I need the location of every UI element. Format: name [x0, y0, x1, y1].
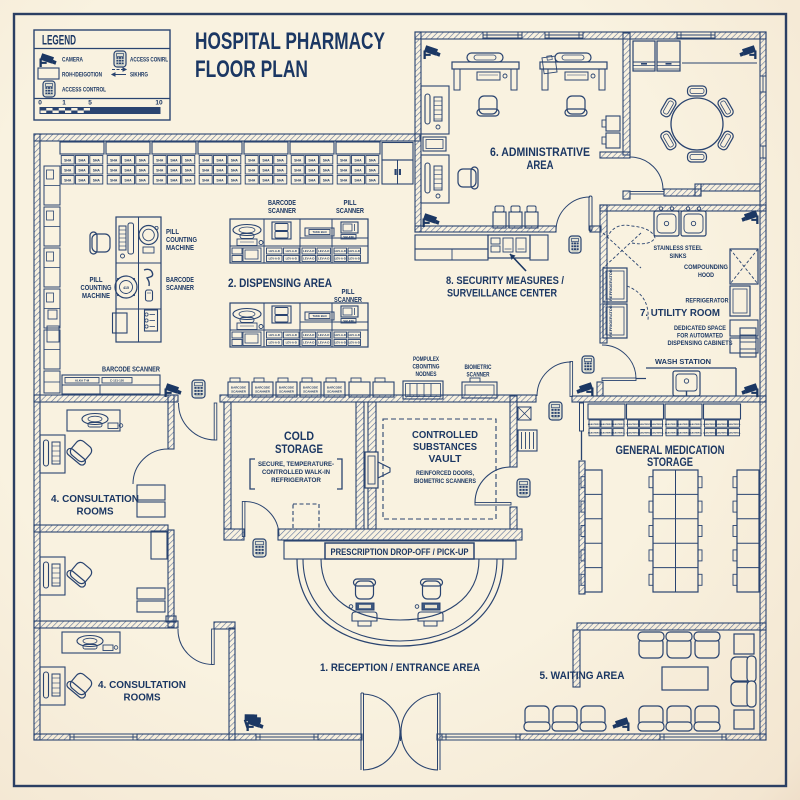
svg-text:SHA: SHA — [78, 158, 86, 162]
svg-text:SHA: SHA — [202, 178, 210, 182]
svg-text:LEV-A-D: LEV-A-D — [335, 257, 346, 261]
svg-text:HOSPITAL PHARMACY: HOSPITAL PHARMACY — [195, 28, 385, 55]
svg-text:C-121-120: C-121-120 — [110, 378, 125, 382]
svg-text:ALBUTEROL: ALBUTEROL — [650, 431, 664, 434]
svg-text:SHA: SHA — [262, 178, 270, 182]
svg-text:AREA: AREA — [527, 160, 554, 172]
svg-text:SHA: SHA — [216, 168, 224, 172]
svg-text:SHA: SHA — [124, 158, 132, 162]
svg-text:SHA: SHA — [277, 168, 285, 172]
svg-text:NODNES: NODNES — [416, 372, 437, 378]
svg-text:BARCODE: BARCODE — [268, 200, 296, 207]
svg-text:CONTROLLED: CONTROLLED — [412, 429, 478, 441]
svg-text:LEGEND: LEGEND — [42, 33, 76, 48]
svg-text:1. RECEPTION / ENTRANCE AREA: 1. RECEPTION / ENTRANCE AREA — [320, 662, 480, 674]
svg-text:COUNTING: COUNTING — [81, 285, 112, 292]
svg-text:LEV-A-D: LEV-A-D — [269, 249, 280, 253]
svg-text:SHA: SHA — [202, 158, 210, 162]
svg-text:SHA: SHA — [323, 168, 331, 172]
svg-text:SINKS: SINKS — [670, 253, 688, 260]
svg-text:ACCESS CONIRL: ACCESS CONIRL — [130, 57, 168, 64]
svg-text:SHA: SHA — [294, 158, 302, 162]
svg-text:SHA: SHA — [248, 158, 256, 162]
svg-text:SHA: SHA — [156, 178, 164, 182]
svg-text:SHA: SHA — [64, 178, 72, 182]
svg-text:CAMERA: CAMERA — [62, 57, 83, 64]
svg-text:SHA: SHA — [323, 158, 331, 162]
svg-text:REFRIGERATOR: REFRIGERATOR — [608, 305, 613, 337]
svg-text:ROOMS: ROOMS — [124, 693, 161, 704]
svg-text:LEV-A-D: LEV-A-D — [318, 249, 329, 253]
svg-text:ROOMS: ROOMS — [77, 507, 114, 518]
svg-text:TAKE BLN: TAKE BLN — [313, 314, 327, 318]
svg-text:SURVEILLANCE CENTER: SURVEILLANCE CENTER — [447, 288, 557, 300]
svg-text:SHA: SHA — [185, 158, 193, 162]
svg-text:SCANNER: SCANNER — [327, 390, 343, 394]
svg-text:SHA: SHA — [124, 178, 132, 182]
svg-text:STORAGE: STORAGE — [647, 457, 693, 469]
svg-text:SHA: SHA — [277, 158, 285, 162]
svg-text:SHA: SHA — [216, 158, 224, 162]
svg-text:COUNTING: COUNTING — [166, 237, 197, 244]
svg-text:PILL: PILL — [90, 277, 104, 284]
svg-text:LEV-A-D: LEV-A-D — [335, 249, 346, 253]
svg-text:LEV-A-D: LEV-A-D — [286, 257, 297, 261]
svg-text:ALBUTEROL: ALBUTEROL — [727, 423, 741, 426]
svg-text:HOOD: HOOD — [698, 272, 714, 279]
svg-text:SHA: SHA — [78, 178, 86, 182]
svg-text:7. UTILITY ROOM: 7. UTILITY ROOM — [640, 307, 720, 319]
svg-text:PILL: PILL — [344, 200, 358, 207]
svg-text:POMPULEX: POMPULEX — [413, 357, 439, 363]
svg-text:SHA: SHA — [231, 158, 239, 162]
svg-text:SCANNER: SCANNER — [467, 373, 491, 379]
svg-text:FOR AUTOMATED: FOR AUTOMATED — [677, 333, 723, 340]
svg-text:SHA: SHA — [294, 168, 302, 172]
svg-text:SHA: SHA — [248, 168, 256, 172]
svg-text:SHA: SHA — [369, 178, 377, 182]
svg-text:SCANNER: SCANNER — [336, 208, 364, 215]
svg-text:LEV-A-D: LEV-A-D — [303, 341, 314, 345]
svg-text:10: 10 — [155, 100, 163, 107]
svg-text:SHA: SHA — [139, 168, 147, 172]
svg-text:ALBUTEROL: ALBUTEROL — [612, 431, 626, 434]
svg-text:CONTROLLED WALK-IN: CONTROLLED WALK-IN — [262, 469, 330, 476]
svg-text:PILL: PILL — [342, 289, 356, 296]
svg-text:SHA: SHA — [78, 168, 86, 172]
svg-text:LEV-A-D: LEV-A-D — [318, 257, 329, 261]
svg-text:SHA: SHA — [93, 158, 101, 162]
svg-text:SHA: SHA — [308, 158, 316, 162]
svg-text:STAINLESS STEEL: STAINLESS STEEL — [654, 245, 703, 252]
svg-text:ALBUTEROL: ALBUTEROL — [689, 423, 703, 426]
svg-text:SHA: SHA — [110, 158, 118, 162]
svg-text:LEV-A-D: LEV-A-D — [318, 341, 329, 345]
svg-text:0: 0 — [38, 100, 42, 107]
svg-text:SHA: SHA — [277, 178, 285, 182]
svg-text:SHA: SHA — [185, 178, 193, 182]
svg-text:SHA: SHA — [170, 158, 178, 162]
svg-text:SIKHRG: SIKHRG — [130, 72, 148, 79]
svg-text:SHA: SHA — [262, 168, 270, 172]
svg-text:LEV-A-D: LEV-A-D — [269, 341, 280, 345]
svg-text:LEV-A-D: LEV-A-D — [286, 333, 297, 337]
svg-text:DEDICATED SPACE: DEDICATED SPACE — [674, 325, 727, 332]
svg-text:SHA: SHA — [340, 178, 348, 182]
svg-text:SHA: SHA — [93, 178, 101, 182]
svg-text:SHA: SHA — [216, 178, 224, 182]
svg-text:BARCODE SCANNER: BARCODE SCANNER — [102, 367, 160, 374]
svg-text:SCANNER: SCANNER — [255, 390, 271, 394]
svg-text:SHA: SHA — [308, 168, 316, 172]
svg-text:SCANNER: SCANNER — [268, 208, 296, 215]
svg-text:LEV-A-D: LEV-A-D — [318, 333, 329, 337]
svg-text:LEV-A-D: LEV-A-D — [349, 249, 360, 253]
svg-text:5: 5 — [88, 100, 92, 107]
svg-text:ALKA T-M: ALKA T-M — [75, 378, 90, 382]
svg-text:SHA: SHA — [308, 178, 316, 182]
svg-text:SCANNER: SCANNER — [279, 390, 295, 394]
svg-text:MACHINE: MACHINE — [82, 293, 110, 300]
svg-text:SHA: SHA — [64, 168, 72, 172]
svg-text:REFRIGERATOR: REFRIGERATOR — [608, 269, 613, 301]
svg-text:CBONITING: CBONITING — [413, 365, 440, 371]
svg-text:SHA: SHA — [231, 168, 239, 172]
svg-text:LEV-A-D: LEV-A-D — [349, 257, 360, 261]
svg-text:SHA: SHA — [369, 168, 377, 172]
svg-text:ALBUTEROL: ALBUTEROL — [612, 423, 626, 426]
svg-text:SHA: SHA — [262, 158, 270, 162]
svg-text:LEV-A-D: LEV-A-D — [269, 333, 280, 337]
svg-text:SHA: SHA — [248, 178, 256, 182]
svg-text:SHA: SHA — [340, 158, 348, 162]
svg-text:SHA: SHA — [369, 158, 377, 162]
svg-text:BARCODE: BARCODE — [166, 277, 194, 284]
svg-text:GENERAL MEDICATION: GENERAL MEDICATION — [616, 445, 725, 457]
svg-text:ALBUTEROL: ALBUTEROL — [727, 431, 741, 434]
svg-text:SHA: SHA — [64, 158, 72, 162]
svg-text:SHA: SHA — [354, 158, 362, 162]
svg-text:LEV-A-D: LEV-A-D — [286, 341, 297, 345]
svg-text:SCANNER: SCANNER — [231, 390, 247, 394]
svg-text:5. WAITING AREA: 5. WAITING AREA — [540, 670, 625, 682]
svg-text:VAULT: VAULT — [429, 453, 463, 465]
svg-text:SHA: SHA — [340, 168, 348, 172]
svg-text:ALBUTEROL: ALBUTEROL — [689, 431, 703, 434]
svg-text:4. CONSULTATION: 4. CONSULTATION — [51, 494, 139, 505]
svg-text:REFRIGERATOR: REFRIGERATOR — [271, 477, 321, 484]
svg-text:SHA: SHA — [110, 178, 118, 182]
svg-text:BIOMETRIC: BIOMETRIC — [465, 365, 493, 371]
svg-text:LEV-A-D: LEV-A-D — [335, 341, 346, 345]
svg-text:2. DISPENSING AREA: 2. DISPENSING AREA — [228, 278, 332, 290]
svg-text:SCANNER: SCANNER — [303, 390, 319, 394]
svg-text:FLOOR PLAN: FLOOR PLAN — [195, 56, 308, 83]
svg-text:SUBSTANCES: SUBSTANCES — [413, 441, 477, 453]
svg-text:WASH STATION: WASH STATION — [655, 359, 711, 366]
svg-text:LEV-A-D: LEV-A-D — [349, 333, 360, 337]
svg-text:COLD: COLD — [284, 431, 314, 443]
svg-text:SHA: SHA — [294, 178, 302, 182]
svg-text:SHA: SHA — [354, 178, 362, 182]
svg-text:TAKE BLN: TAKE BLN — [313, 230, 327, 234]
svg-text:LEV-A-D: LEV-A-D — [303, 257, 314, 261]
svg-text:1: 1 — [62, 100, 66, 107]
svg-text:MACHINE: MACHINE — [166, 245, 194, 252]
svg-text:SHA: SHA — [231, 178, 239, 182]
svg-text:REINFORCED DOORS,: REINFORCED DOORS, — [416, 470, 474, 477]
svg-text:PILL: PILL — [166, 229, 180, 236]
svg-text:LEV-A-D: LEV-A-D — [303, 249, 314, 253]
svg-text:ALBUTEROL: ALBUTEROL — [650, 423, 664, 426]
svg-text:LEV-A-D: LEV-A-D — [303, 333, 314, 337]
svg-text:PRESCRIPTION DROP-OFF / PICK-U: PRESCRIPTION DROP-OFF / PICK-UP — [331, 547, 470, 558]
svg-text:ROH-IDEIGOTION: ROH-IDEIGOTION — [62, 72, 102, 79]
svg-text:SHI-KIN: SHI-KIN — [343, 235, 353, 239]
svg-text:SHA: SHA — [323, 178, 331, 182]
svg-text:SHI-KIN: SHI-KIN — [343, 319, 353, 323]
svg-text:SECURE, TEMPERATURE-: SECURE, TEMPERATURE- — [258, 461, 334, 468]
svg-text:STORAGE: STORAGE — [275, 444, 323, 456]
svg-text:SHA: SHA — [354, 168, 362, 172]
svg-text:SHA: SHA — [156, 168, 164, 172]
svg-text:6. ADMINISTRATIVE: 6. ADMINISTRATIVE — [490, 147, 590, 159]
svg-text:COMPOUNDING: COMPOUNDING — [684, 264, 728, 271]
svg-text:SCANNER: SCANNER — [166, 285, 194, 292]
svg-text:SHA: SHA — [185, 168, 193, 172]
svg-text:SHA: SHA — [124, 168, 132, 172]
svg-text:LEV-A-D: LEV-A-D — [335, 333, 346, 337]
svg-text:SHA: SHA — [110, 168, 118, 172]
svg-text:SHA: SHA — [170, 178, 178, 182]
svg-text:LEV-A-D: LEV-A-D — [269, 257, 280, 261]
svg-text:LEV-A-D: LEV-A-D — [349, 341, 360, 345]
svg-text:ACCESS CONTROL: ACCESS CONTROL — [62, 87, 106, 94]
svg-text:REFRIGERATOR: REFRIGERATOR — [686, 298, 729, 305]
svg-text:SHA: SHA — [93, 168, 101, 172]
svg-text:4. CONSULTATION: 4. CONSULTATION — [98, 680, 186, 691]
svg-text:8. SECURITY MEASURES /: 8. SECURITY MEASURES / — [446, 275, 564, 287]
svg-text:415: 415 — [123, 286, 129, 290]
svg-text:SHA: SHA — [139, 178, 147, 182]
svg-text:SHA: SHA — [156, 158, 164, 162]
svg-text:SHA: SHA — [170, 168, 178, 172]
svg-text:BIOMETRIC SCANNERS: BIOMETRIC SCANNERS — [414, 478, 476, 485]
svg-text:LEV-A-D: LEV-A-D — [286, 249, 297, 253]
svg-text:SHA: SHA — [139, 158, 147, 162]
svg-text:SHA: SHA — [202, 168, 210, 172]
svg-text:DISPENSING CABINETS: DISPENSING CABINETS — [668, 340, 734, 347]
